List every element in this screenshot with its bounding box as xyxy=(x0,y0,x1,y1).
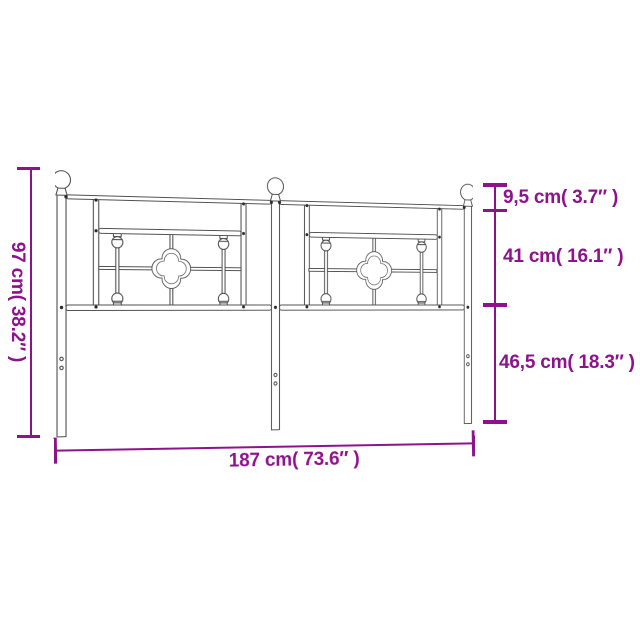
joint-dots xyxy=(60,195,469,309)
headboard-frame xyxy=(55,170,473,437)
ball-finial xyxy=(461,184,474,206)
dim-label-middle-section: 41 cm( 16.1″ ) xyxy=(503,246,623,268)
dim-label-top-section: 9,5 cm( 3.7″ ) xyxy=(503,187,618,209)
dim-left-line xyxy=(30,167,33,437)
dim-bottom-group: 187 cm( 73.6″ ) xyxy=(54,424,476,477)
dim-right-cap-bottom xyxy=(483,420,507,423)
dim-bottom-cap-left xyxy=(54,438,58,464)
center-post xyxy=(271,200,279,430)
diagram-canvas: 97 cm( 38.2″ ) 9,5 cm( 3.7″ ) 41 cm( 16.… xyxy=(0,0,640,640)
dim-label-total-width: 187 cm( 73.6″ ) xyxy=(214,448,374,473)
screw-holes xyxy=(60,352,469,390)
dim-label-bottom-section: 46,5 cm( 18.3″ ) xyxy=(499,352,635,374)
ball-finial xyxy=(55,170,71,195)
left-post xyxy=(57,194,66,437)
quatrefoil-ornament xyxy=(357,251,392,289)
ball-finial xyxy=(267,178,283,202)
headboard-svg xyxy=(55,169,473,441)
right-post xyxy=(464,205,471,423)
dim-right-tick-1 xyxy=(483,209,507,212)
dim-right-tick-2 xyxy=(483,303,507,306)
dim-left-cap-top xyxy=(17,167,40,170)
quatrefoil-ornament xyxy=(152,248,191,288)
dim-bottom-cap-right xyxy=(471,430,475,456)
dim-left-cap-bottom xyxy=(17,435,40,438)
headboard-drawing xyxy=(55,169,473,441)
dim-label-total-height: 97 cm( 38.2″ ) xyxy=(6,242,28,362)
